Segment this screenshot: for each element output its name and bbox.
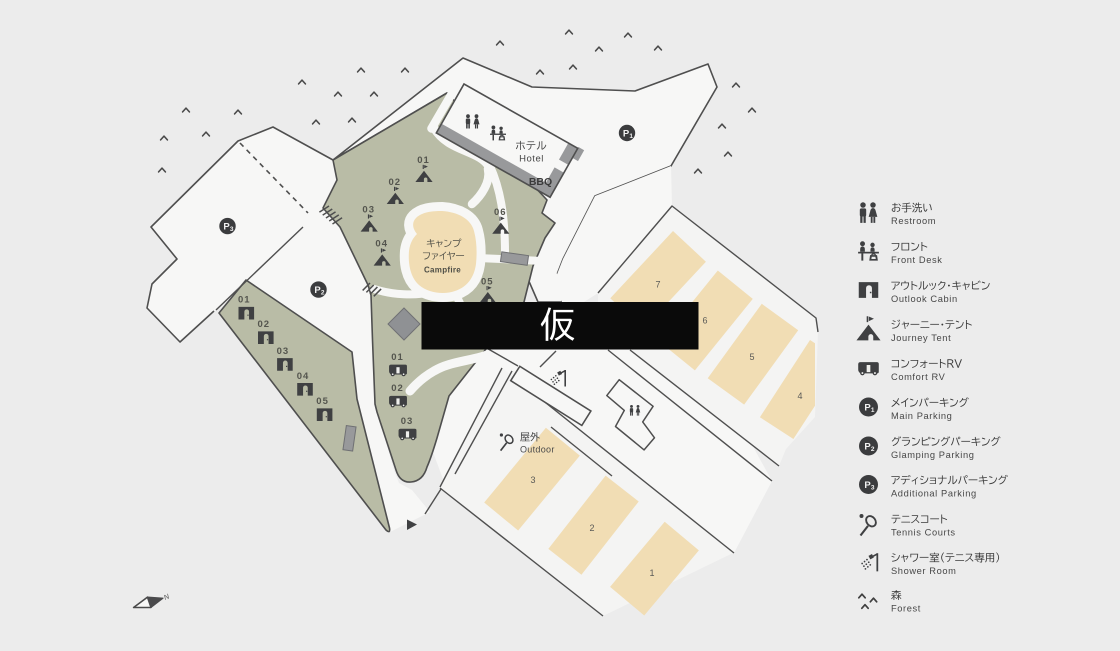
svg-text:Tennis Courts: Tennis Courts <box>891 528 956 538</box>
svg-text:Outlook Cabin: Outlook Cabin <box>891 294 958 304</box>
svg-text:05: 05 <box>481 276 494 287</box>
svg-text:Outdoor: Outdoor <box>520 445 555 455</box>
svg-text:2: 2 <box>321 289 325 296</box>
svg-text:06: 06 <box>494 207 507 218</box>
svg-text:Forest: Forest <box>891 604 921 614</box>
svg-text:04: 04 <box>375 239 388 250</box>
svg-text:01: 01 <box>238 295 251 306</box>
svg-text:02: 02 <box>391 383 404 394</box>
svg-text:02: 02 <box>389 177 402 188</box>
svg-text:02: 02 <box>258 319 271 330</box>
svg-text:1: 1 <box>871 407 875 414</box>
svg-text:04: 04 <box>297 371 310 382</box>
svg-text:3: 3 <box>530 475 535 485</box>
svg-text:01: 01 <box>417 155 430 166</box>
svg-text:Shower Room: Shower Room <box>891 566 957 576</box>
svg-text:3: 3 <box>230 226 234 233</box>
svg-text:Restroom: Restroom <box>891 216 936 226</box>
svg-text:2: 2 <box>589 523 594 533</box>
svg-text:Campfire: Campfire <box>424 265 461 274</box>
svg-text:3: 3 <box>871 484 875 491</box>
svg-text:2: 2 <box>871 446 875 453</box>
svg-text:03: 03 <box>277 346 290 357</box>
svg-text:7: 7 <box>655 280 660 290</box>
svg-text:Journey Tent: Journey Tent <box>891 333 951 343</box>
svg-text:Front Desk: Front Desk <box>891 255 942 265</box>
svg-text:6: 6 <box>702 316 707 326</box>
svg-text:Comfort RV: Comfort RV <box>891 372 946 382</box>
svg-text:Glamping Parking: Glamping Parking <box>891 450 975 460</box>
svg-text:1: 1 <box>649 568 654 578</box>
svg-text:Hotel: Hotel <box>519 154 544 165</box>
svg-text:5: 5 <box>749 352 754 362</box>
svg-text:03: 03 <box>362 205 375 216</box>
svg-text:BBQ: BBQ <box>529 176 552 188</box>
svg-text:05: 05 <box>316 396 329 407</box>
svg-text:01: 01 <box>391 352 404 363</box>
svg-text:Additional Parking: Additional Parking <box>891 489 977 499</box>
svg-text:Main Parking: Main Parking <box>891 411 952 421</box>
svg-text:4: 4 <box>797 391 802 401</box>
svg-text:03: 03 <box>401 416 414 427</box>
svg-text:1: 1 <box>629 133 633 140</box>
